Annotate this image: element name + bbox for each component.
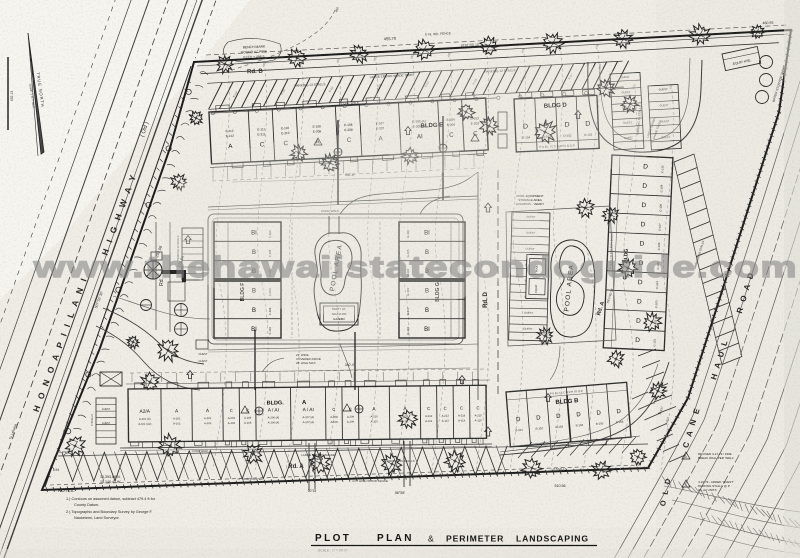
svg-text:www.thehawaiistatecondoguide.c: www.thehawaiistatecondoguide.com bbox=[33, 250, 799, 284]
